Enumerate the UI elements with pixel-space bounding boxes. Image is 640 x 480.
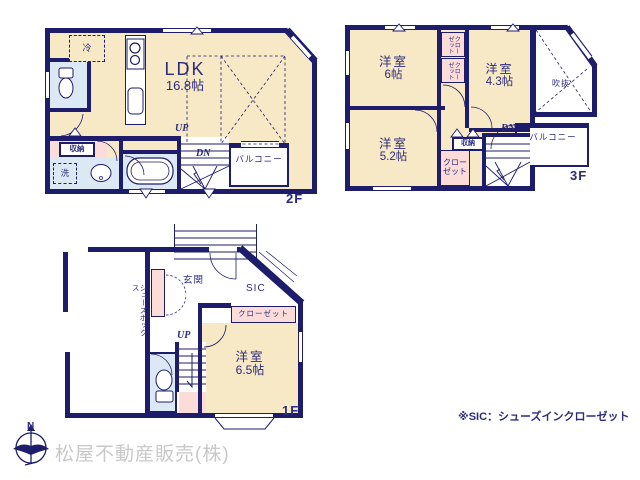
closet-3f-a-label: クローゼット bbox=[447, 34, 460, 55]
company-name: 松屋不動産販売(株) bbox=[55, 439, 230, 466]
balcony-label-2f: バルコニー bbox=[231, 153, 287, 167]
wall-segment bbox=[175, 342, 179, 392]
storage-label-2f: 収納 bbox=[70, 145, 85, 153]
shoe-box bbox=[151, 269, 165, 317]
window bbox=[385, 25, 415, 30]
room-43-label: 洋室 4.3帖 bbox=[469, 53, 530, 99]
wall-segment bbox=[350, 106, 445, 110]
sic-note: ※SIC：シューズインクローゼット bbox=[458, 411, 629, 423]
fridge-label: 冷 bbox=[82, 43, 91, 53]
storage-box-3f: 収納 bbox=[452, 137, 484, 151]
wall-segment bbox=[119, 150, 177, 154]
room-6-size: 6帖 bbox=[385, 69, 403, 82]
window bbox=[345, 51, 350, 75]
sic-label: SIC bbox=[246, 283, 266, 294]
wall-segment bbox=[119, 141, 123, 189]
window bbox=[215, 413, 273, 418]
wall-segment bbox=[88, 247, 148, 252]
floor3-void-block bbox=[531, 25, 597, 117]
window bbox=[45, 72, 50, 98]
balcony-text-3f: バルコニー bbox=[529, 133, 576, 143]
floor3-plan: クローゼット クローゼット クローゼット 収納 洋室 6帖 洋室 4.3帖 洋室… bbox=[345, 25, 597, 191]
balcony-label-3f: バルコニー bbox=[521, 131, 585, 145]
balcony-text-2f: バルコニー bbox=[235, 155, 282, 165]
closet-1f-label: クローゼット bbox=[238, 310, 289, 318]
window bbox=[241, 141, 279, 148]
down-label-3f: DN bbox=[501, 123, 515, 134]
room-52-name: 洋室 bbox=[379, 137, 408, 151]
wall-segment bbox=[65, 413, 149, 418]
wall-segment bbox=[87, 62, 91, 110]
room-toilet-2f bbox=[50, 62, 87, 110]
room-43-size: 4.3帖 bbox=[486, 76, 514, 89]
room-52-size: 5.2帖 bbox=[380, 151, 408, 164]
window bbox=[163, 28, 211, 33]
fridge-space: 冷 bbox=[69, 35, 105, 62]
closet-1f: クローゼット bbox=[231, 306, 296, 323]
wall-segment bbox=[63, 252, 68, 312]
window bbox=[298, 332, 303, 362]
room-6-label: 洋室 6帖 bbox=[350, 45, 437, 91]
shoe-box-label: シューズボックス bbox=[123, 284, 147, 342]
window bbox=[129, 189, 165, 194]
laundry-label: 洗 bbox=[61, 169, 70, 179]
entrance-label: 玄関 bbox=[183, 276, 204, 287]
laundry-space: 洗 bbox=[53, 163, 77, 184]
room-52-label: 洋室 5.2帖 bbox=[350, 127, 437, 173]
ldk-name: LDK bbox=[164, 59, 205, 79]
wall-segment bbox=[50, 136, 181, 141]
floor1-plan: クローゼット 玄関 SIC シューズボックス 洋室 6.5帖 UP bbox=[63, 222, 310, 420]
closet-3f-c: クローゼット bbox=[440, 150, 470, 186]
window bbox=[345, 123, 350, 149]
room-toilet-1f bbox=[148, 352, 177, 413]
compass-north-label: N bbox=[27, 421, 34, 432]
closet-3f-c-label: クローゼット bbox=[442, 159, 468, 177]
closet-3f-a: クローゼット bbox=[441, 32, 465, 57]
down-label-2f: DN bbox=[196, 148, 210, 159]
floor-plan-sheet: 冷 収納 洗 LDK 16.8帖 UP DN バルコニー bbox=[0, 0, 640, 480]
room-bathroom-2f bbox=[123, 154, 177, 189]
void-label: 吹抜 bbox=[537, 77, 585, 91]
wall-segment bbox=[50, 108, 91, 112]
storage-box-2f: 収納 bbox=[59, 142, 95, 157]
room-6-name: 洋室 bbox=[379, 55, 408, 69]
up-label-2f: UP bbox=[175, 123, 188, 134]
wall-segment bbox=[177, 136, 181, 189]
stairs-2f bbox=[181, 137, 229, 189]
floor2-plan: 冷 収納 洗 LDK 16.8帖 UP DN バルコニー bbox=[45, 28, 317, 194]
floor3-label: 3F bbox=[570, 168, 587, 183]
room-43-name: 洋室 bbox=[485, 63, 513, 76]
floor1-label: 1F bbox=[282, 403, 299, 418]
ldk-size: 16.8帖 bbox=[166, 79, 204, 94]
floor2-label: 2F bbox=[286, 191, 303, 206]
bedroom-label: 洋室 6.5帖 bbox=[202, 340, 298, 388]
window bbox=[491, 25, 519, 30]
bedroom-size: 6.5帖 bbox=[236, 364, 265, 377]
wall-segment bbox=[198, 303, 231, 308]
closet-3f-b: クローゼット bbox=[441, 58, 465, 83]
ldk-label-group: LDK 16.8帖 bbox=[138, 54, 232, 98]
door-opening bbox=[209, 247, 237, 252]
storage-label-3f: 収納 bbox=[461, 140, 475, 148]
window bbox=[373, 186, 411, 191]
up-label-1f: UP bbox=[177, 330, 190, 341]
void-text: 吹抜 bbox=[552, 80, 570, 89]
wall-segment bbox=[65, 352, 70, 413]
closet-3f-b-label: クローゼット bbox=[447, 60, 460, 81]
